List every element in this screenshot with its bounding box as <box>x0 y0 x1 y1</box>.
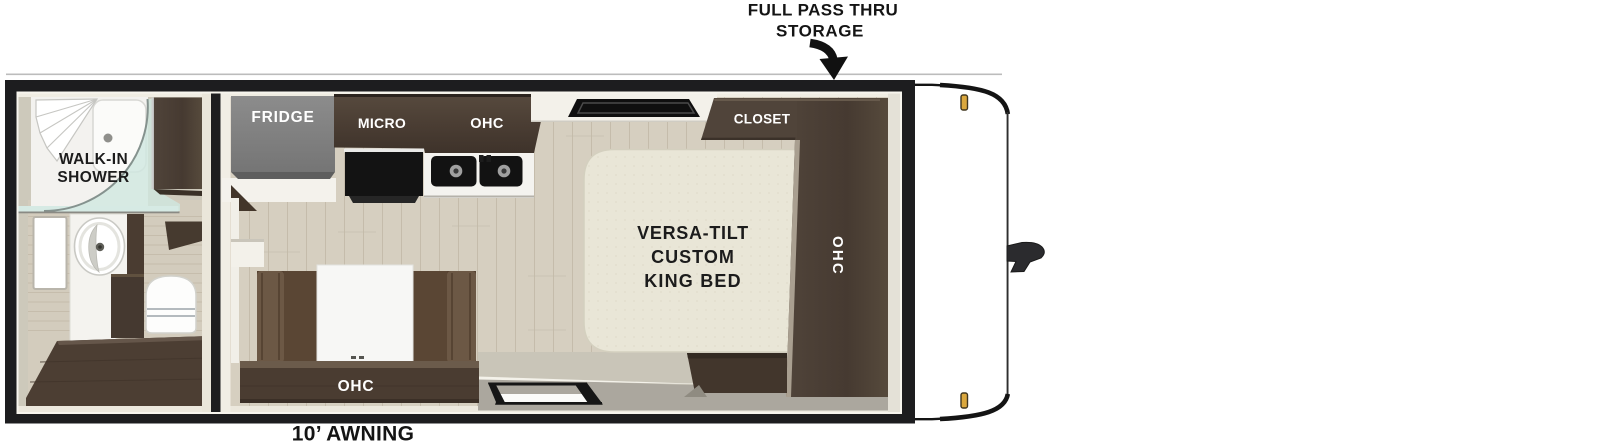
svg-text:WALK-IN: WALK-IN <box>59 151 128 168</box>
svg-text:KING BED: KING BED <box>644 271 742 291</box>
svg-text:OHC: OHC <box>338 378 375 395</box>
svg-text:CLOSET: CLOSET <box>734 112 791 127</box>
svg-text:10’ AWNING: 10’ AWNING <box>292 423 414 443</box>
svg-text:OHC: OHC <box>470 116 504 132</box>
svg-text:SHOWER: SHOWER <box>57 169 129 186</box>
svg-text:FRIDGE: FRIDGE <box>251 109 314 126</box>
svg-text:OHC: OHC <box>829 236 846 276</box>
svg-text:MICRO: MICRO <box>358 115 406 131</box>
svg-text:FULL PASS THRU: FULL PASS THRU <box>748 1 898 20</box>
svg-text:STORAGE: STORAGE <box>776 22 864 41</box>
svg-text:VERSA-TILT: VERSA-TILT <box>637 223 749 243</box>
svg-text:CUSTOM: CUSTOM <box>651 247 735 267</box>
